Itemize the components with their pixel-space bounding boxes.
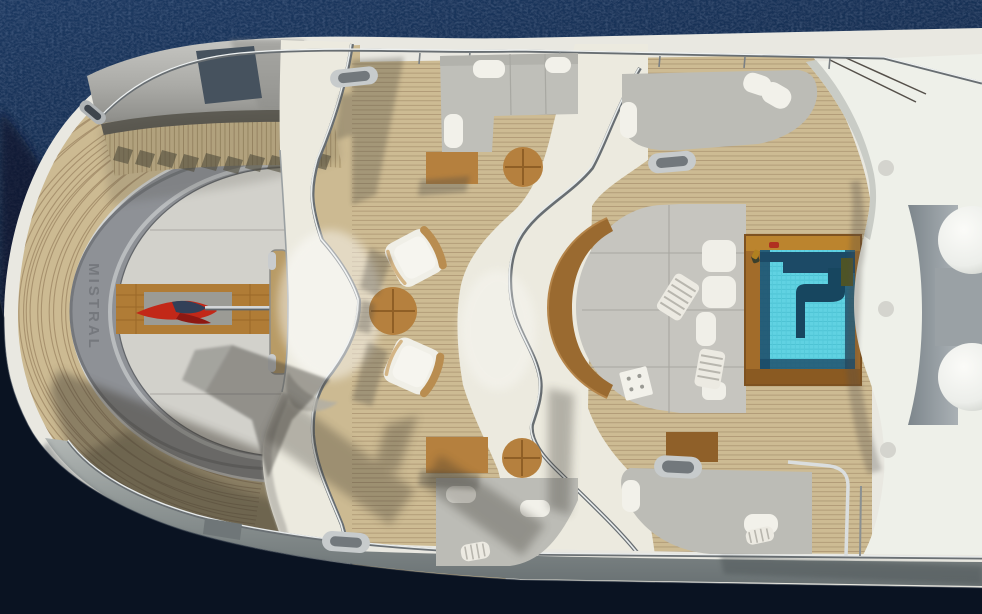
svg-text:MISTRAL: MISTRAL: [85, 263, 102, 351]
